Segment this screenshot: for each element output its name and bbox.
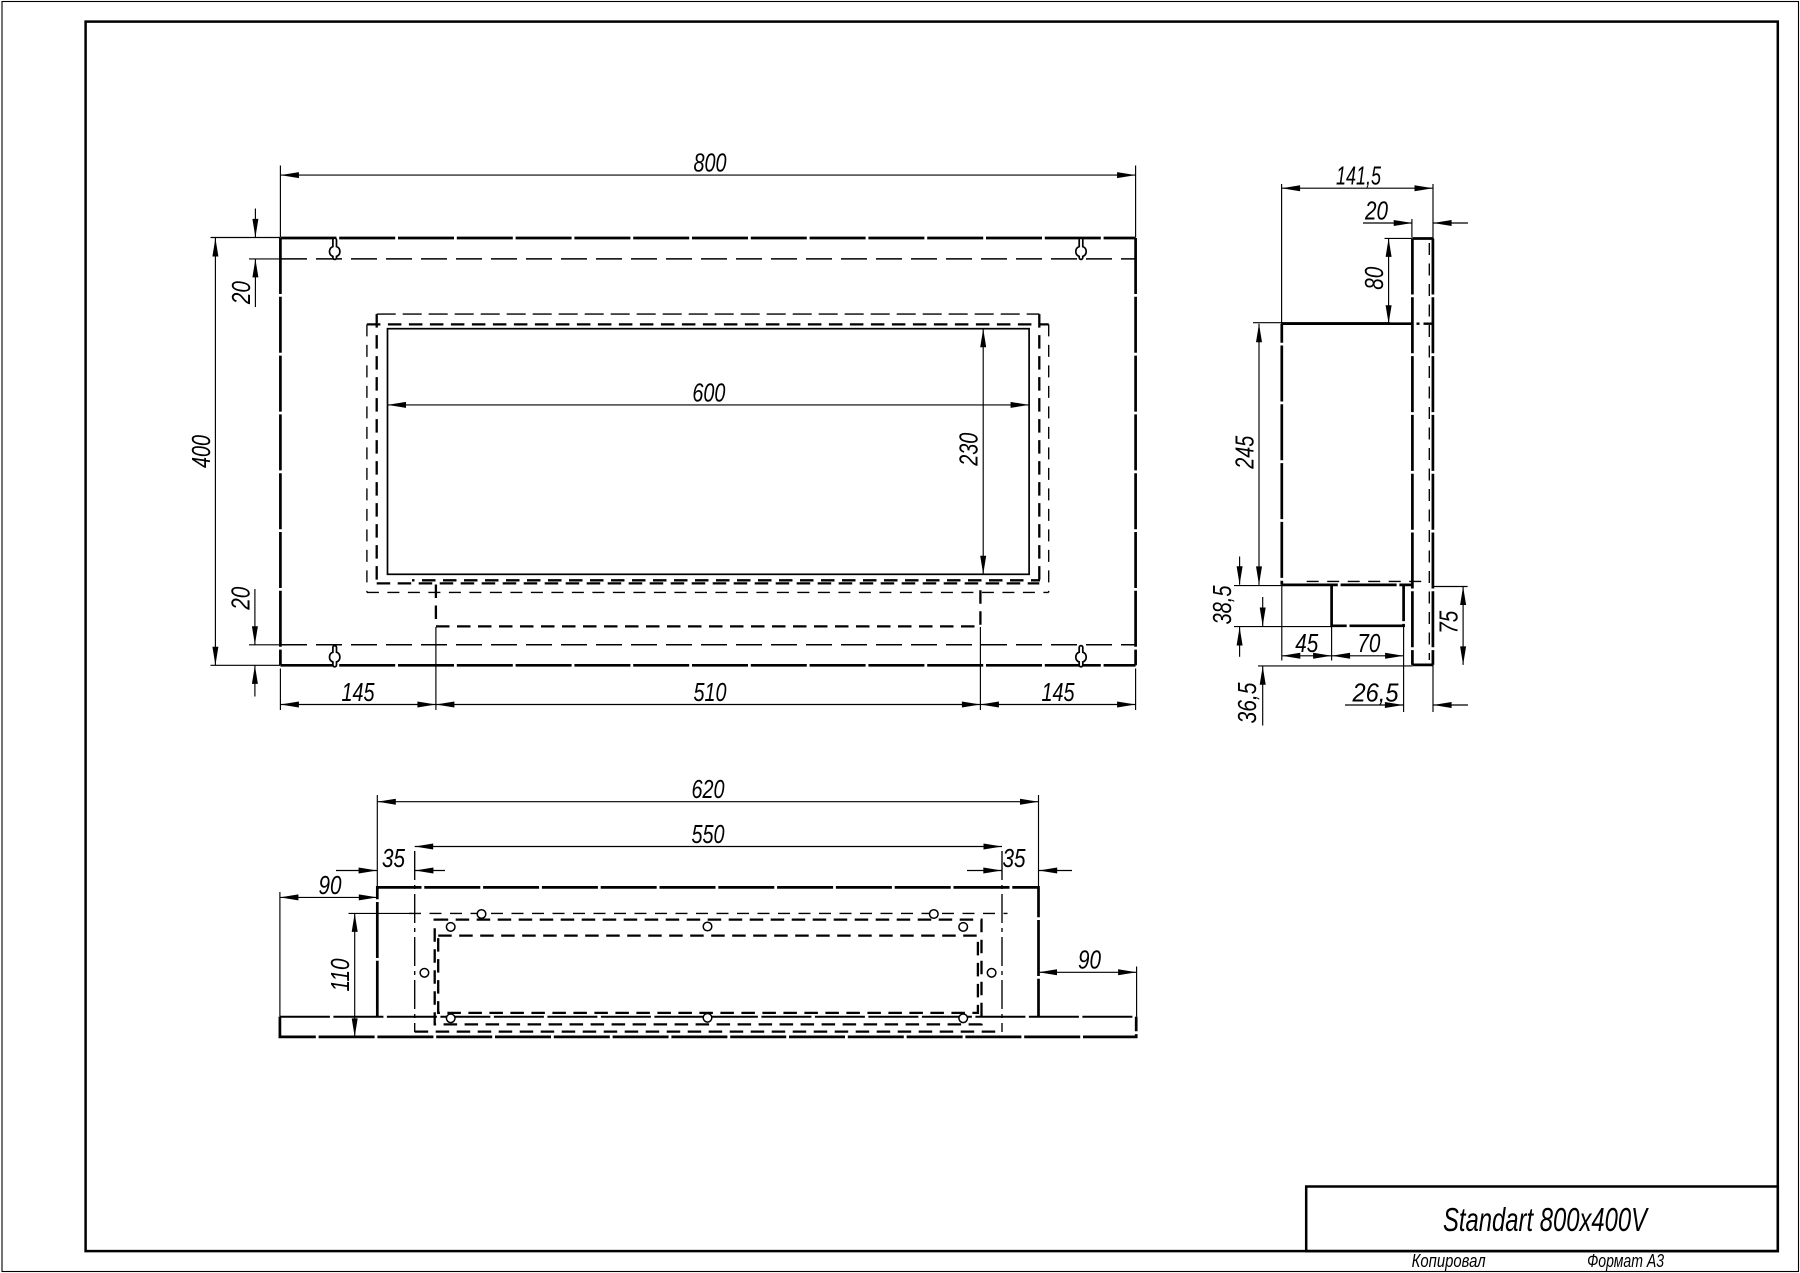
- svg-text:90: 90: [1078, 945, 1101, 975]
- svg-text:400: 400: [186, 435, 216, 468]
- svg-text:Копировал: Копировал: [1412, 1251, 1486, 1271]
- svg-text:45: 45: [1295, 628, 1318, 658]
- svg-text:Формат А3: Формат А3: [1587, 1251, 1664, 1271]
- svg-text:20: 20: [1364, 195, 1388, 225]
- svg-text:510: 510: [694, 677, 727, 707]
- svg-text:90: 90: [319, 870, 342, 900]
- svg-text:110: 110: [325, 958, 355, 991]
- svg-text:80: 80: [1359, 266, 1389, 289]
- svg-text:245: 245: [1229, 435, 1259, 469]
- svg-text:20: 20: [225, 586, 255, 610]
- svg-text:600: 600: [692, 377, 725, 407]
- svg-text:35: 35: [1003, 843, 1026, 873]
- svg-text:70: 70: [1357, 628, 1380, 658]
- svg-text:35: 35: [382, 843, 405, 873]
- svg-text:26,5: 26,5: [1352, 677, 1399, 707]
- svg-text:38,5: 38,5: [1207, 585, 1237, 624]
- svg-text:145: 145: [1042, 677, 1075, 707]
- svg-text:620: 620: [692, 774, 725, 804]
- svg-text:Standart 800x400V: Standart 800x400V: [1443, 1201, 1649, 1238]
- svg-text:550: 550: [692, 819, 725, 849]
- svg-text:20: 20: [226, 281, 256, 305]
- svg-text:141,5: 141,5: [1336, 161, 1381, 191]
- svg-text:230: 230: [954, 432, 984, 466]
- svg-text:75: 75: [1434, 610, 1464, 633]
- svg-text:145: 145: [342, 677, 375, 707]
- svg-text:800: 800: [694, 148, 727, 178]
- svg-text:36,5: 36,5: [1232, 682, 1262, 723]
